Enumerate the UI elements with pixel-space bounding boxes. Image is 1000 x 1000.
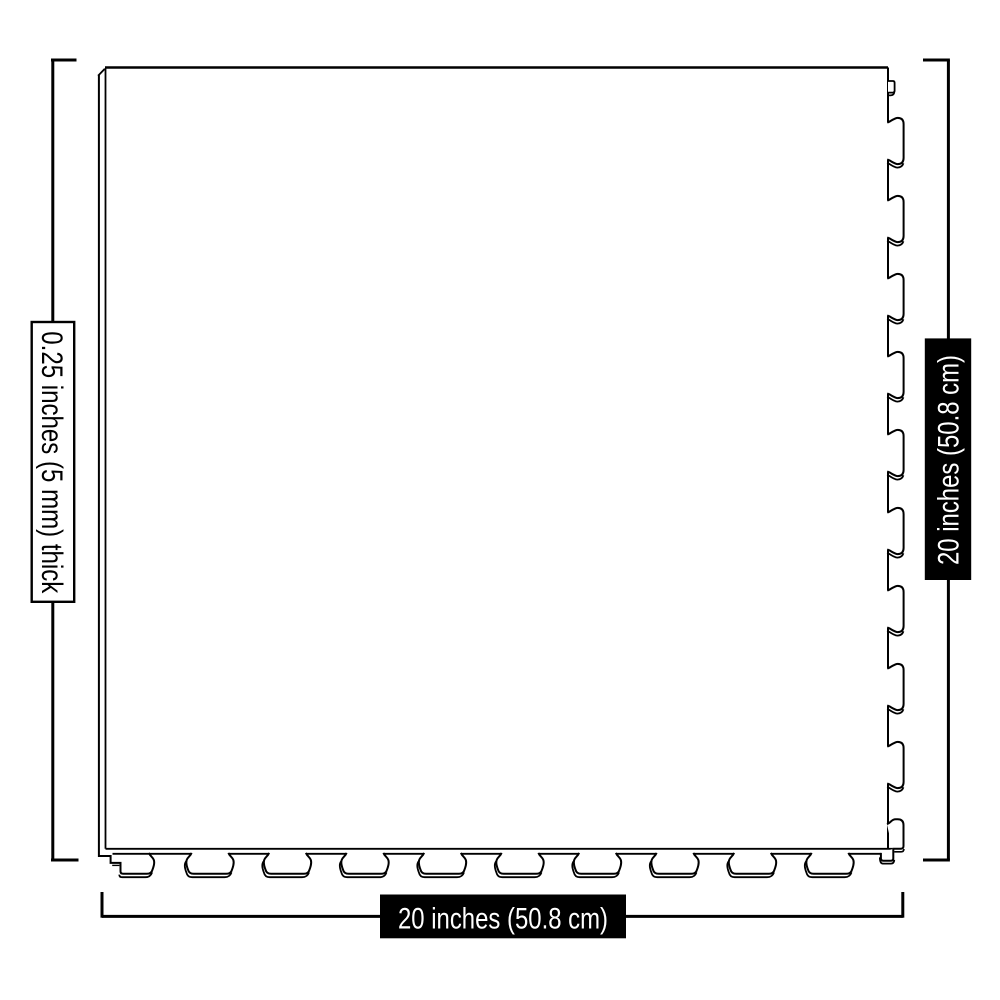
- svg-text:20 inches (50.8 cm): 20 inches (50.8 cm): [932, 355, 965, 565]
- svg-text:20 inches (50.8 cm): 20 inches (50.8 cm): [398, 903, 608, 936]
- svg-text:0.25 inches (5 mm) thick: 0.25 inches (5 mm) thick: [35, 331, 68, 594]
